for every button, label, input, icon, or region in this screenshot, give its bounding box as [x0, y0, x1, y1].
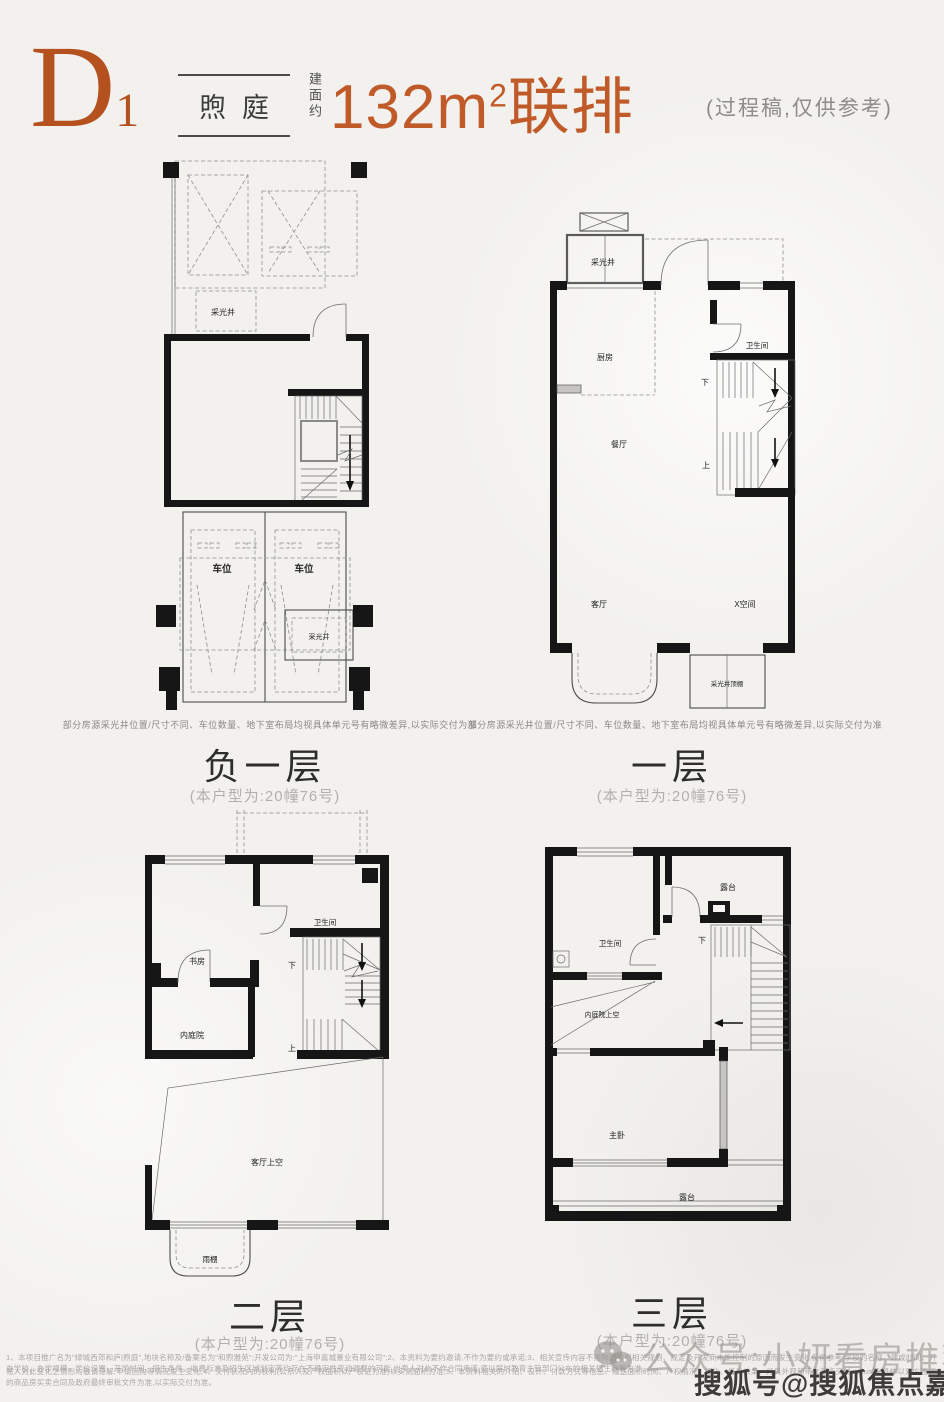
- wechat-icon: [592, 1339, 634, 1375]
- label-up: 上: [288, 1044, 296, 1053]
- label-down: 下: [701, 378, 709, 387]
- plan-code-letter: D: [30, 21, 115, 152]
- floor-sub-basement: (本户型为:20幢76号): [115, 785, 415, 806]
- label-living-void: 客厅上空: [251, 1157, 283, 1167]
- floor-title-basement: 负一层: [115, 738, 415, 790]
- plan-note-first: 部分房源采光井位置/尺寸不同、车位数量、地下室布局均视具体单元号有略微差异,以实…: [455, 718, 895, 731]
- label-living: 客厅: [591, 599, 607, 609]
- label-courtyard: 内庭院: [180, 1030, 204, 1040]
- label-terrace-bottom: 露台: [679, 1192, 695, 1202]
- label-study: 书房: [189, 956, 205, 966]
- label-terrace-top: 露台: [720, 882, 736, 892]
- label-up: 上: [702, 461, 710, 470]
- floorplan-third-floor: 露台 卫生间 下 内庭院上空 主卧: [545, 845, 805, 1270]
- label-master: 主卧: [609, 1130, 625, 1140]
- header-note: (过程稿,仅供参考): [706, 92, 893, 122]
- plan-code: D1: [30, 28, 139, 146]
- label-light-well: 采光井: [211, 307, 235, 317]
- floor-sub-first: (本户型为:20幢76号): [522, 785, 822, 806]
- plan-note-basement: 部分房源采光井位置/尺寸不同、车位数量、地下室布局均视具体单元号有略微差异,以实…: [50, 718, 490, 731]
- label-x-space: X空间: [734, 599, 755, 609]
- label-rain-canopy: 雨棚: [203, 1254, 218, 1264]
- label-parking-right: 车位: [294, 563, 314, 575]
- label-light-well-canopy: 采光井顶棚: [711, 679, 744, 688]
- label-kitchen: 厨房: [597, 352, 613, 362]
- floor-sub-second: (本户型为:20幢76号): [120, 1333, 420, 1354]
- floorplan-basement: 采光井 车位 车位: [150, 155, 380, 710]
- area-number: 132m: [330, 73, 489, 142]
- area-prefix: 建面约: [305, 72, 324, 130]
- area-sup: 2: [489, 77, 508, 113]
- label-down: 下: [698, 936, 706, 945]
- area-title: 132m2联排: [330, 56, 634, 146]
- project-name-box: 煦庭: [178, 74, 290, 137]
- floorplan-first-floor: 采光井 卫生间 下 上 厨房: [545, 205, 800, 710]
- label-light-well: 采光井: [309, 632, 330, 641]
- area-suffix: 联排: [508, 73, 634, 142]
- label-bath: 卫生间: [314, 917, 337, 927]
- page: D1 煦庭 建面约 132m2联排 (过程稿,仅供参考) 采光井: [0, 0, 944, 1402]
- label-courtyard-void: 内庭院上空: [585, 1010, 620, 1019]
- label-down: 下: [288, 961, 296, 970]
- label-light-well: 采光井: [591, 257, 615, 267]
- label-dining: 餐厅: [611, 440, 627, 449]
- label-bath: 卫生间: [746, 340, 769, 350]
- label-bath: 卫生间: [599, 938, 622, 948]
- sohu-watermark: 搜狐号@搜狐焦点嘉峪关站: [694, 1362, 944, 1402]
- floor-title-first: 一层: [522, 738, 822, 790]
- floorplan-second-floor: 卫生间 书房 内庭院 下 上 客厅上空: [140, 810, 400, 1285]
- label-parking-left: 车位: [212, 563, 232, 575]
- plan-code-number: 1: [115, 84, 139, 137]
